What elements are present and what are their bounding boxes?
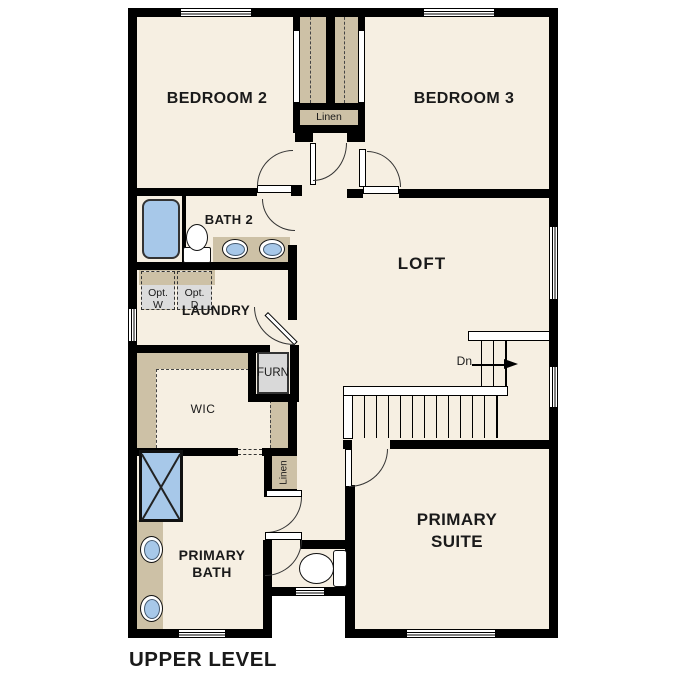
door-leaf-primary-bath <box>266 490 302 497</box>
sink-basin <box>144 599 160 619</box>
toilet-tank-wc <box>333 550 347 587</box>
wic-cased-opening <box>238 449 262 455</box>
window-bedroom3 <box>423 8 495 17</box>
stair-railing-top <box>468 331 558 341</box>
closet-bedroom2 <box>300 12 326 103</box>
wic-shelf-guide-right <box>270 400 273 448</box>
wall-closet-bottom <box>293 103 365 110</box>
linen-lower-label: Linen <box>279 460 290 484</box>
sink-basin <box>263 243 282 256</box>
loft-label: LOFT <box>372 254 472 274</box>
down-arrow-icon <box>504 359 518 369</box>
exterior-notch <box>272 596 345 638</box>
sink-basin <box>144 540 160 560</box>
door-opening-bedroom3 <box>363 186 399 194</box>
wall-linen2-top <box>264 448 297 456</box>
linen-closet-upper: Linen <box>300 110 358 125</box>
floor-plan: Linen Linen <box>0 0 687 687</box>
closet2-bypass-door <box>293 30 300 103</box>
linen-closet-lower: Linen <box>272 456 297 489</box>
sink-bath2-left <box>222 239 248 259</box>
sink-bath2-right <box>259 239 285 259</box>
wall-closet-mid <box>326 12 335 103</box>
bathtub <box>142 199 180 259</box>
sink-primary-top <box>140 536 163 563</box>
primary-bath-label: PRIMARY BATH <box>167 547 257 581</box>
wall-suite-top-corner <box>343 440 352 449</box>
wall-bedroom2-corner <box>291 185 302 196</box>
linen-upper-label: Linen <box>316 111 342 123</box>
window-loft <box>549 226 558 300</box>
wall-bedroom3-bottom-left <box>347 189 363 198</box>
window-laundry <box>128 308 137 342</box>
stair-railing-main <box>343 386 508 396</box>
wall-closet-right <box>358 8 365 32</box>
wall-wc-top <box>300 540 355 549</box>
window-bedroom2 <box>180 8 252 17</box>
door-leaf-water-closet <box>265 532 302 540</box>
stair-railing-return <box>343 395 353 439</box>
toilet-bowl-bath2 <box>186 224 208 251</box>
toilet-bowl-wc <box>299 553 334 584</box>
bedroom3-label: BEDROOM 3 <box>389 90 539 108</box>
furnace-label: FURN <box>241 367 305 379</box>
laundry-label: LAUNDRY <box>166 303 266 319</box>
primary-suite-label: PRIMARY SUITE <box>397 509 517 553</box>
wic-label: WIC <box>173 402 233 416</box>
down-arrow-line <box>472 364 505 366</box>
sink-primary-bottom <box>140 595 163 622</box>
wall-suite-top <box>390 440 558 449</box>
sink-basin <box>226 243 245 256</box>
wall-linen-bottom <box>293 125 365 133</box>
bedroom2-label: BEDROOM 2 <box>142 90 292 108</box>
stairs-upper-flight <box>470 341 507 392</box>
closet-bedroom3 <box>335 12 358 103</box>
closet-rod-line <box>310 12 312 103</box>
stairs-down-label: Dn <box>446 354 472 368</box>
shower <box>139 450 183 522</box>
wall-bedroom2-bottom <box>128 188 257 196</box>
window-stair-landing <box>549 366 558 408</box>
door-opening-bedroom2 <box>257 185 292 193</box>
bath2-label: BATH 2 <box>179 213 279 228</box>
wall-hall-stub-left <box>295 133 313 142</box>
plan-title: UPPER LEVEL <box>129 648 349 672</box>
wic-shelf-left <box>136 353 156 448</box>
wall-right <box>549 8 558 638</box>
stairs-main-flight <box>353 396 498 438</box>
door-leaf-bedroom3 <box>359 149 366 187</box>
window-water-closet <box>295 587 325 596</box>
closet3-bypass-door <box>358 30 365 103</box>
wall-bedroom3-bottom <box>399 189 558 198</box>
wall-closet-left <box>293 8 300 32</box>
wall-laundry-wic <box>128 345 248 353</box>
closet-rod-line <box>344 12 346 103</box>
window-primary-bath <box>178 629 226 638</box>
window-primary-suite <box>406 629 496 638</box>
wall-hall-stub-right <box>347 133 365 142</box>
washer-label: Opt. W <box>148 287 168 311</box>
wall-bath2-laundry <box>128 262 290 270</box>
